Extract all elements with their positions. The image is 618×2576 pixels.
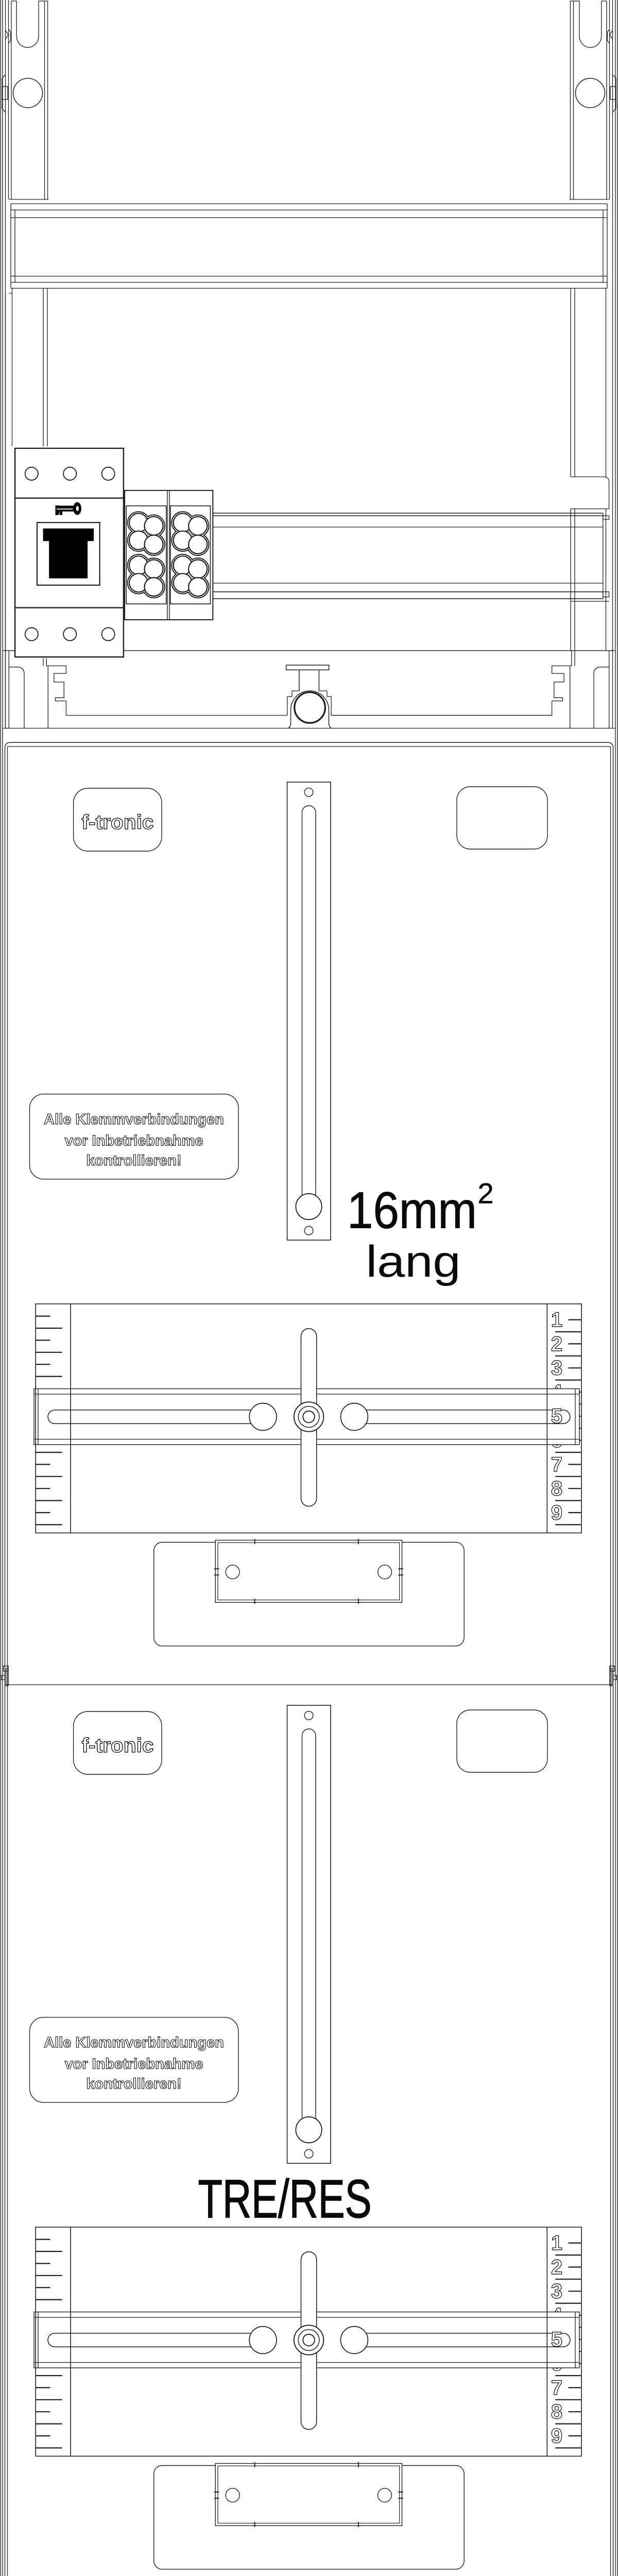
svg-text:lang: lang — [366, 1237, 461, 1286]
svg-text:1: 1 — [551, 1309, 562, 1331]
svg-text:f-tronic: f-tronic — [82, 811, 154, 834]
svg-text:8: 8 — [551, 2401, 562, 2424]
svg-text:vor Inbetriebnahme: vor Inbetriebnahme — [64, 1133, 203, 1149]
svg-text:f-tronic: f-tronic — [82, 1735, 154, 1757]
svg-text:2: 2 — [551, 2256, 562, 2279]
svg-text:5: 5 — [551, 2328, 562, 2351]
svg-text:7: 7 — [551, 2377, 562, 2399]
svg-text:1: 1 — [551, 2232, 562, 2255]
svg-text:Alle Klemmverbindungen: Alle Klemmverbindungen — [44, 2035, 224, 2051]
svg-text:7: 7 — [551, 1453, 562, 1476]
svg-text:TRE/RES: TRE/RES — [198, 2169, 372, 2229]
svg-text:vor Inbetriebnahme: vor Inbetriebnahme — [64, 2056, 203, 2073]
svg-text:kontrollieren!: kontrollieren! — [86, 1153, 181, 1169]
svg-text:5: 5 — [551, 1405, 562, 1428]
svg-text:2: 2 — [478, 1177, 494, 1210]
svg-text:kontrollieren!: kontrollieren! — [86, 2076, 181, 2092]
svg-text:9: 9 — [551, 2425, 562, 2448]
svg-text:8: 8 — [551, 1478, 562, 1500]
svg-text:Alle Klemmverbindungen: Alle Klemmverbindungen — [44, 1111, 224, 1128]
svg-text:16mm: 16mm — [347, 1182, 477, 1240]
svg-text:3: 3 — [551, 1357, 562, 1380]
svg-text:9: 9 — [551, 1502, 562, 1524]
svg-text:2: 2 — [551, 1333, 562, 1355]
svg-text:3: 3 — [551, 2280, 562, 2303]
